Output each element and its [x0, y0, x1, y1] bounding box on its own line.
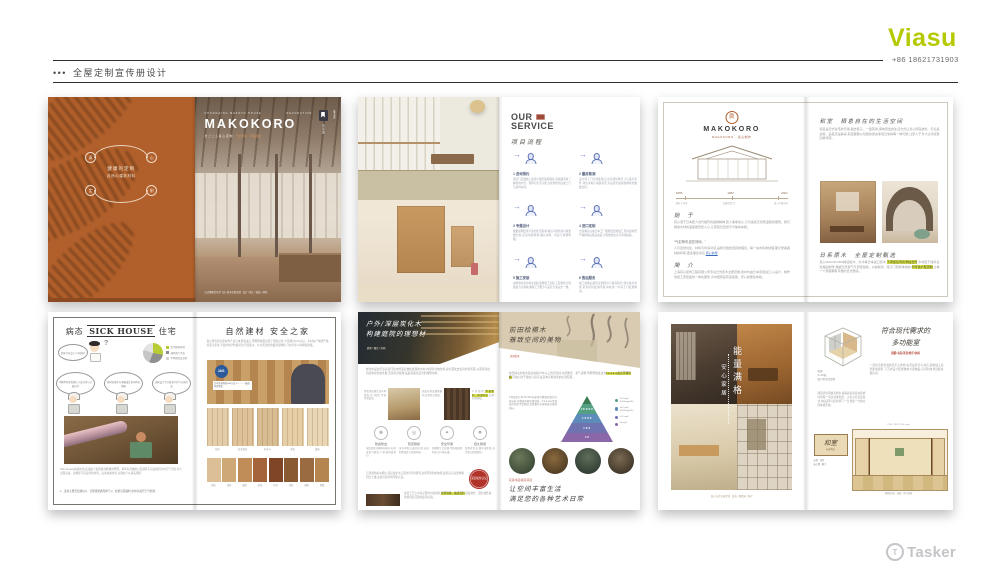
title-cn-post: 住宅 [159, 327, 177, 336]
inspector-silhouette [291, 364, 325, 404]
legend-label: 通风换气不良 [171, 351, 185, 355]
step-desc: 竣工验收后提供定期回访与保养指导,建立客户档案,若有任何使用问题,将在第一时间上… [579, 282, 637, 294]
cover-subtitle-right: 日式原木 · 环保建材 [236, 134, 261, 138]
vent-duct [64, 420, 128, 449]
spread-sickhouse: 病态 SICK HOUSE 住宅 新家为何会让人不舒服? ? 化学建材影响 通风… [48, 312, 341, 510]
legend-swatch [166, 357, 169, 360]
photo-tatami-dining [820, 181, 876, 243]
tatami-collage: 能量满格 安心家居 [671, 324, 792, 490]
person-icon [525, 153, 536, 164]
color-swatch: 胡桃 [300, 458, 314, 487]
shoji-panels [195, 173, 342, 239]
timeline-label: 创业于日本 [676, 201, 688, 205]
emblem-circle: 心 [146, 152, 157, 163]
step-desc: 设计师上门实地勘测,记录房屋结构尺寸与采光条件,评估水电与墙面状况,为后续方案提… [579, 178, 637, 190]
wood-swatch: 杉木直纹 [232, 408, 254, 451]
shoji-rail [358, 142, 440, 144]
tatami-floor [853, 475, 947, 490]
photo-note: 户外使用,不易腐朽、防虫防蛀,后期打理轻松。 [472, 390, 494, 401]
timeline-label: 进入中国市场 [774, 201, 788, 205]
annotation: ≤1.5 mg/L [615, 416, 639, 420]
feature-安全环保: ✦ 安全环保 纯物理工艺处理,不添加防腐药剂,对人体无害。 [432, 426, 462, 454]
color-swatch: 黑檀 [315, 458, 329, 487]
wood-table [748, 368, 778, 381]
feature-label: 安全环保 [432, 442, 462, 446]
window-light [836, 192, 858, 211]
speech-bubble: 新家为何会让人不舒服? [58, 344, 88, 361]
pink-chair [471, 263, 478, 275]
service-step-6: → 6 售后服务 竣工验收后提供定期回访与保养指导,建立客户档案,若有任何使用问… [579, 255, 637, 294]
closet-right [931, 438, 945, 478]
tasker-logo-icon: T [886, 543, 904, 561]
color-swatch: 红棕 [269, 458, 283, 487]
paragraph-text: 前田林业的桧木取自树龄70年以上的天然林,木质致密、香气清雅,甲醛释放量达到 [509, 372, 606, 375]
photo-tatami-room [358, 97, 499, 200]
color-swatch: 浅茶 [222, 458, 236, 487]
brand-timeline: 1955 1987 2021 创业于日本 自建定制工厂 进入中国市场 [676, 193, 788, 207]
arrow-icon: → [579, 254, 587, 263]
section-paragraph: 人与自然共生、材料与时间对话,是我们始终坚持的理念。每一块木料的纹理,都记录着森… [674, 246, 790, 255]
washitsu-page: 和室 栖息自在的生活空间 和室是日式住宅的灵魂,脱去鞋子、一盏茶香,席地而坐的生… [806, 97, 954, 302]
feature-稳定耐候: ◎ 稳定耐候 含水率低,抗变形开裂,适应四季温差与雨雪环境。 [399, 426, 429, 454]
sickhouse-list: 1、选用无醛天然建材;2、合理规划通风换气;3、杜绝劣质辅料,交付前进行空气检测… [60, 490, 182, 494]
feature-icon: ◎ [407, 426, 421, 440]
service-script: 项目流程 [511, 137, 543, 146]
wood-platform [279, 255, 341, 282]
brand-mark-icon: 眞 [725, 111, 738, 124]
highlight-text: 纹理清晰、触感温润 [441, 492, 464, 495]
tatami-floor [358, 171, 499, 200]
legend-item: 化学建材影响 [166, 345, 187, 349]
section-heading: 简 介 [674, 261, 696, 269]
multiroom-paragraph: 一间和室能承载的远不止休憩:白天是茶室与书房,夜晚铺上床垫即成客卧,下沉式设计还… [870, 364, 944, 377]
brand-story-page: 眞 MAKOKORO MAGOKORO · 真心制作 1955 1987 202… [658, 97, 806, 302]
hinoki-title-line2: 雅致空间的美物 [509, 336, 562, 346]
charcoal-tag: 庭院 / 露台 / 外构 [367, 346, 385, 350]
photo-note: 经炭化处理后含水率更低,尺寸稳定,不易开裂变形。 [364, 390, 386, 401]
photo-wood-inspection: JAS 日本农林规格JAS认证 F☆☆☆☆最高环保等级 [207, 360, 329, 404]
charcoal-page: 户外/深层炭化木 构建庭院的理想材 庭院 / 露台 / 外构 炭化木是在无氧高温… [358, 312, 499, 510]
wood-post [931, 438, 932, 476]
page-edge [48, 298, 195, 302]
hinoki-title: 前田桧槅木 雅致空间的美物 [509, 326, 562, 346]
photo-incense [575, 448, 601, 474]
multiroom-page: 符合现代需求的 多功能室 团聚/书房/茶室/娱乐/休闲 和室 3~4.5帖 依户… [806, 312, 954, 510]
worker-body [164, 404, 176, 414]
timeline-tick [778, 196, 779, 200]
page-title-row: ••• 全屋定制宣传册设计 [53, 66, 167, 79]
pyramid-band: F★★★ [561, 414, 613, 424]
brand-wordmark-sub: MAGOKORO · 真心制作 [658, 135, 806, 139]
spread-cover: 真 心 定 制 健康的定制 自然の建筑材料 CHONGQING MAKOTO H… [48, 97, 341, 302]
slogan-line2: 满足您的各种艺术日常 [509, 493, 584, 503]
materials-page: 自然建材 安全之家 真心所有原木建材均产自日本原装进口,甲醛释放量远低于国家标准… [195, 312, 342, 510]
cause-pie-chart [143, 343, 163, 363]
dark-swatch-row: 原色 浅茶 黄茶 茶色 红棕 深棕 胡桃 黑檀 [207, 458, 330, 487]
feature-label: 防腐防虫 [366, 442, 396, 446]
shoji-wall [358, 97, 440, 171]
photo-calligraphy [542, 448, 568, 474]
worker-shirt [130, 442, 152, 458]
photo-attic-room [882, 181, 938, 243]
photo-ventilation-install [64, 416, 178, 464]
step-desc: 由经验丰富的专业团队进场施工安装,工程管家全程跟进节点验收,确保工艺细节与设计方… [513, 282, 571, 290]
person-icon [525, 257, 536, 268]
iso-note-line: 依户型灵活定制 [818, 378, 836, 382]
photo-shoji-screens [737, 404, 792, 490]
low-table [830, 226, 865, 232]
step-label: 3 专属设计 [513, 223, 571, 228]
emblem-circle: 定 [85, 185, 96, 196]
arrow-icon: → [513, 254, 521, 263]
color-swatch: 原色 [207, 458, 221, 487]
attic-arch [886, 187, 933, 230]
shoji-light [676, 332, 696, 380]
highlight-text: 不添加任何化学粘合剂 [887, 260, 918, 264]
beanbag [914, 229, 930, 239]
arch-inner [893, 200, 927, 230]
title-en: SICK HOUSE [87, 325, 155, 337]
wood-swatch: 椴木 [307, 408, 329, 451]
highlight-text: 均可依户型定制 [912, 265, 933, 269]
pyramid-band: F★★ [561, 423, 613, 433]
page-title: 全屋定制宣传册设计 [73, 66, 168, 79]
emblem-line1: 健康的定制 [82, 166, 160, 172]
arrow-icon: → [579, 150, 587, 159]
hinoki-tag: 天然桧木 [510, 354, 520, 358]
annotation: ≤0.3 mg/L (0.005mg/m²h) [615, 398, 639, 404]
photo-wood-hallway [358, 200, 499, 303]
service-step-3: → 3 专属设计 根据勘测结果与您的生活需求,输出平面布局与效果图方案,反复沟通… [513, 203, 571, 242]
step-label: 4 进口定制 [579, 223, 637, 228]
step-label: 6 售后服务 [579, 275, 637, 280]
pyramid-annotations: ≤0.3 mg/L (0.005mg/m²h) ≤0.5 mg/L (0.020… [615, 398, 639, 429]
wood-swatch: 赤松 [282, 408, 304, 451]
ceiling-beams [195, 97, 342, 167]
woodselect-heading: 日系原木 全屋定制甄选 [820, 251, 897, 259]
cover-subtitle-left: ま ご こ ろ 真 心 定 制 [205, 134, 233, 138]
charcoal-paragraph: 与普通防腐木相比,深层炭化木无需化学药剂即可达到同等防护效果,废弃后可自然降解回… [366, 472, 464, 480]
building-sketch [684, 141, 780, 183]
cartoon-hair [89, 341, 100, 346]
cover-footer: 日式健康住宅专门店 | 原木全屋定制 · 设计 / 施工 / 软装一体化 [205, 290, 268, 294]
wood-post [238, 154, 241, 273]
cover-subtitle: ま ご こ ろ 真 心 定 制 日式原木 · 环保建材 [205, 134, 261, 138]
wood-post [275, 154, 278, 273]
charcoal-swatch [366, 494, 400, 506]
service-photo-page [358, 97, 499, 302]
section-paragraph: 上海真心装饰工程有限公司专注日式原木全屋定制,建材均由日本原装进口,从设计、制作… [674, 270, 790, 279]
legend-label: 不明原因及其他 [171, 356, 188, 360]
back-wall [869, 438, 933, 478]
timeline-year: 2021 [781, 191, 788, 195]
quote-line: “气定神闲,如在林间。” [674, 239, 706, 244]
worker-face [69, 396, 77, 403]
legend-item: 不明原因及其他 [166, 356, 187, 360]
charcoal-paragraph: 炭化工艺让木材呈现均匀深咖色,纹理清晰、触感温润,铺设地台、围栏或外墙,皆能营造… [404, 492, 492, 500]
cover-title: MAKOKORO [205, 117, 297, 131]
step-label: 2 量房勘测 [579, 171, 637, 176]
feature-icon: ❋ [374, 426, 388, 440]
multiroom-paragraph: 随着居住需求多样化,越来越多家庭在装修时预留一间多功能和室。无论平层还是复式,3… [818, 392, 866, 408]
hinoki-intro: 前田林业的桧木取自树龄70年以上的天然林,木质致密、香气清雅,甲醛释放量达到F★… [509, 372, 631, 380]
hinoki-page: 前田桧槅木 雅致空间的美物 天然桧木 前田林业的桧木取自树龄70年以上的天然林,… [499, 312, 640, 510]
arts-list: 花道/书道/香道/茶道 [509, 478, 532, 482]
brand-wordmark: MAKOKORO [658, 126, 806, 133]
service-step-4: → 4 进口定制 方案确认后由日本工厂按图纸定制加工,原木建材经严格检验后报关发… [579, 203, 637, 238]
cartoon-body [90, 353, 101, 362]
low-table [431, 154, 473, 163]
brand-emblem: 真 心 定 制 健康的定制 自然の建筑材料 [82, 145, 160, 203]
annotation: ≤0.5 mg/L (0.020mg/m²h) [615, 407, 639, 413]
service-title: OUR SERVICE [511, 113, 554, 131]
pyramid-apex [561, 396, 613, 404]
legend-label: 化学建材影响 [171, 345, 185, 349]
brand-phone: +86 18621731903 [892, 55, 959, 64]
step-desc: 根据勘测结果与您的生活需求,输出平面布局与效果图方案,反复沟通调整,确认材料、色… [513, 230, 571, 242]
person-icon [591, 257, 602, 268]
materials-intro: 真心所有原木建材均产自日本原装进口,甲醛释放量远低于国家标准,全部通过JAS认证… [207, 340, 329, 348]
step-desc: 方案确认后由日本工厂按图纸定制加工,原木建材经严格检验后报关发运,全程物流信息可… [579, 230, 637, 238]
color-swatch: 深棕 [284, 458, 298, 487]
vertical-divider [728, 354, 729, 424]
header-rule-top [53, 60, 883, 61]
annotation: ≤5 mg/L [615, 422, 639, 426]
feature-label: 经久耐用 [465, 442, 495, 446]
multiroom-title-line2: 多功能室 [866, 338, 946, 348]
timeline-label: 自建定制工厂 [723, 201, 737, 205]
service-content-page: OUR SERVICE 项目流程 → 1 咨询预约 通过门店或线上渠道与我们取得… [499, 97, 640, 302]
arrow-icon: → [513, 150, 521, 159]
worker-body [116, 404, 128, 414]
person-icon [525, 205, 536, 216]
multiroom-title-line1: 符合现代需求的 [866, 326, 946, 336]
elevation-notes: 天袋 · 吊柜 床の間 / 障子 [814, 460, 827, 467]
step-label: 1 咨询预约 [513, 171, 571, 176]
feature-desc: 深层炭化分解木材养分,杜绝虫蛀与腐朽,户外使用更放心。 [366, 447, 396, 458]
section-heading: 始 于 [674, 211, 696, 219]
cover-eyebrow-left: CHONGQING MAKOTO HOUSE [205, 112, 262, 115]
bookmark-icon [319, 110, 328, 121]
step-label: 5 施工安装 [513, 275, 571, 280]
wood-swatch: 桧木 [207, 408, 229, 451]
hall-floor [358, 286, 499, 302]
header-rule-bottom [53, 82, 958, 83]
washitsu-paragraph: 和室是日式住宅的灵魂,脱去鞋子、一盏茶香,席地而坐的生活方式让身心彻底放松。无论… [820, 127, 940, 141]
photo-warm-room [737, 324, 792, 404]
light-swatch-row: 桧木 杉木直纹 杉木节 赤松 椴木 [207, 408, 332, 451]
arrow-icon: → [513, 202, 521, 211]
person-icon [591, 205, 602, 216]
ink-painting [747, 419, 766, 450]
emblem-circle: 制 [146, 185, 157, 196]
emblem-arc-top [94, 145, 148, 158]
service-step-2: → 2 量房勘测 设计师上门实地勘测,记录房屋结构尺寸与采光条件,评估水电与墙面… [579, 151, 637, 190]
timeline-tick [685, 196, 686, 200]
charcoal-title: 户外/深层炭化木 构建庭院的理想材 [366, 320, 426, 340]
bookmark-glyph [321, 112, 325, 118]
photo-ikebana [509, 448, 535, 474]
dots-icon: ••• [53, 68, 67, 78]
cover-photo-page: CHONGQING MAKOTO HOUSE DECORATION MAKOKO… [195, 97, 342, 302]
feature-icon: ✦ [440, 426, 454, 440]
sickhouse-caption: Sick House(病态住宅)是指由于装修建材释放的甲醛、苯等有害物质以及通风… [60, 468, 182, 476]
charcoal-badge: 深层炭化认证 [470, 470, 488, 488]
elevation-dims-top: 2730 / 1820 / 910 (mm) [852, 424, 946, 426]
spread-multiroom: 能量满格 安心家居 真心日式全屋定制 · 桧木 / 榻榻米 / 障子 符合现代需… [658, 312, 953, 510]
worker-body [68, 404, 80, 414]
worker-face [165, 396, 173, 403]
washitsu-label: 和室 [815, 437, 847, 447]
slogan-line1: 让空间丰富生活 [509, 483, 562, 493]
washitsu-label-sub: 标准构成 [815, 447, 847, 451]
charcoal-intro: 炭化木是在无氧高温环境中经深层炭化处理的木材,内部养分被分解,腐朽菌失去生存的营… [366, 368, 490, 376]
elevation-note: 床の間 / 障子 [814, 464, 827, 468]
paragraph-text: 人与自然共生、材料与时间对话,是我们始终坚持的理念。每一块木料的纹理,都记录着森… [674, 246, 790, 255]
washitsu-label-box: 和室 标准构成 [814, 434, 848, 456]
closet-left [855, 438, 869, 478]
jas-stamp-icon: JAS [215, 365, 228, 378]
vertical-subline: 安心家居 [719, 364, 727, 444]
wood-bench [679, 445, 719, 455]
worker-face [117, 396, 125, 403]
note-text: 户外使用, [472, 390, 485, 393]
hinoki-title-line1: 前田桧槅木 [509, 326, 562, 336]
timeline-year: 1955 [676, 191, 683, 195]
watermark-label: Tasker [907, 544, 956, 561]
arrow-icon: → [579, 202, 587, 211]
brand-logo: Viasu [888, 24, 957, 53]
cover-tag-vertical: 真心定制 [321, 124, 325, 154]
spread-brand: 眞 MAKOKORO MAGOKORO · 真心制作 1955 1987 202… [658, 97, 953, 302]
wood-cabinet [397, 206, 445, 274]
iso-note: 和室 3~4.5帖 依户型灵活定制 [818, 370, 836, 382]
step-desc: 通过门店或线上渠道与我们取得联系,专属顾问将了解您的户型、预算与生活习惯,为您预… [513, 178, 571, 190]
charcoal-title-line1: 户外/深层炭化木 [366, 320, 426, 330]
wood-cabinet [451, 226, 474, 267]
washitsu-heading: 和室 栖息自在的生活空间 [820, 117, 904, 125]
stamp-icon [536, 114, 545, 120]
feature-防腐防虫: ❋ 防腐防虫 深层炭化分解木材养分,杜绝虫蛀与腐朽,户外使用更放心。 [366, 426, 396, 458]
pie-legend: 化学建材影响 通风换气不良 不明原因及其他 [166, 345, 187, 362]
photo-tea-ceremony [608, 448, 634, 474]
paragraph-text: ,可放心用于婴幼儿房间,是日本高端住宅的标准配置。 [512, 376, 575, 379]
photo-wood-tub [388, 388, 420, 420]
watermark: T Tasker [886, 543, 956, 561]
title-cn-pre: 病态 [66, 327, 84, 336]
fstar-paragraph: F等级是日本JIS/JAS对建材甲醛释放量的分级标准,星数越多释放量越低。F★★… [509, 396, 557, 411]
cover-side-vertical: 株式会社 [332, 110, 336, 144]
legend-item: 通风换气不良 [166, 351, 187, 355]
pyramid-band: F★★★★ [561, 404, 613, 414]
question-mark: ? [104, 340, 108, 347]
sickhouse-page: 病态 SICK HOUSE 住宅 新家为何会让人不舒服? ? 化学建材影响 通风… [48, 312, 195, 510]
worker-head [136, 432, 146, 442]
materials-title: 自然建材 安全之家 [195, 326, 342, 337]
spread-charcoal: 户外/深层炭化木 构建庭院的理想材 庭院 / 露台 / 外构 炭化木是在无氧高温… [358, 312, 640, 510]
emblem-line2: 自然の建筑材料 [82, 174, 160, 179]
legend-swatch [166, 351, 169, 354]
timeline-year: 1987 [727, 191, 734, 195]
washitsu-elevation [852, 429, 948, 491]
color-swatch: 茶色 [253, 458, 267, 487]
fstar-pyramid: F★★★★ F★★★ F★★ F★ [561, 396, 613, 442]
multiroom-subtitle: 团聚/书房/茶室/娱乐/休闲 [866, 351, 946, 355]
vertical-headline: 能量满格 [731, 346, 744, 466]
spread-service: OUR SERVICE 项目流程 → 1 咨询预约 通过门店或线上渠道与我们取得… [358, 97, 640, 302]
feature-desc: 使用寿命长,维护成本低,岁月愈久质感愈佳。 [465, 447, 495, 454]
feature-icon: ❖ [473, 426, 487, 440]
feature-desc: 纯物理工艺处理,不添加防腐药剂,对人体无害。 [432, 447, 462, 454]
photo-note: 表面呈现深邃焦糖色,自带复古质感。 [422, 390, 442, 397]
emblem-circle: 真 [85, 152, 96, 163]
stamp-caption: 日本农林规格JAS认证 F☆☆☆☆最高环保等级 [213, 381, 252, 390]
sickhouse-title: 病态 SICK HOUSE 住宅 [48, 326, 195, 337]
timeline-tick [732, 196, 733, 200]
woodselect-paragraph: 真心MAKOKORO精选桧木、杉木等日本进口原木,不添加任何化学粘合剂,木材经干… [820, 260, 940, 274]
elevation-dims-bottom: 榻榻米3帖 · 床脇 · 押入收纳 [852, 491, 946, 495]
pyramid-band: F★ [561, 433, 613, 443]
cover-eyebrow-right: DECORATION [287, 112, 313, 115]
feature-label: 稳定耐候 [399, 442, 429, 446]
iso-room-diagram [818, 322, 866, 368]
section-paragraph: 真心源于日本匠人世代相传的造物精神,匠人秉承初心,只为造就天然而温暖的居所。我们… [674, 220, 790, 229]
person-icon [591, 153, 602, 164]
cover-left-page: 真 心 定 制 健康的定制 自然の建筑材料 [48, 97, 195, 302]
tokonoma-art [895, 448, 904, 456]
feature-desc: 含水率低,抗变形开裂,适应四季温差与雨雪环境。 [399, 447, 429, 454]
service-step-5: → 5 施工安装 由经验丰富的专业团队进场施工安装,工程管家全程跟进节点验收,确… [513, 255, 571, 290]
pendant-lamp [470, 100, 485, 113]
energy-photo-page: 能量满格 安心家居 真心日式全屋定制 · 桧木 / 榻榻米 / 障子 [658, 312, 806, 510]
paragraph-text: 真心MAKOKORO精选桧木、杉木等日本进口原木, [820, 260, 887, 264]
emblem-arc-bottom [94, 190, 148, 203]
wood-post [869, 438, 870, 476]
charcoal-title-line2: 构建庭院的理想材 [366, 330, 426, 340]
color-swatch: 黄茶 [238, 458, 252, 487]
photo-charred-fence [444, 388, 470, 420]
legend-swatch [166, 346, 169, 349]
paragraph-text: 炭化工艺让木材呈现均匀深咖色, [404, 492, 441, 495]
collage-caption: 真心日式全屋定制 · 桧木 / 榻榻米 / 障子 [658, 494, 806, 498]
inline-link: 真心的家 [706, 251, 718, 255]
service-step-1: → 1 咨询预约 通过门店或线上渠道与我们取得联系,专属顾问将了解您的户型、预算… [513, 151, 571, 190]
service-title-line2: SERVICE [511, 122, 554, 131]
feature-经久耐用: ❖ 经久耐用 使用寿命长,维护成本低,岁月愈久质感愈佳。 [465, 426, 495, 454]
wood-swatch: 杉木节 [257, 408, 279, 451]
